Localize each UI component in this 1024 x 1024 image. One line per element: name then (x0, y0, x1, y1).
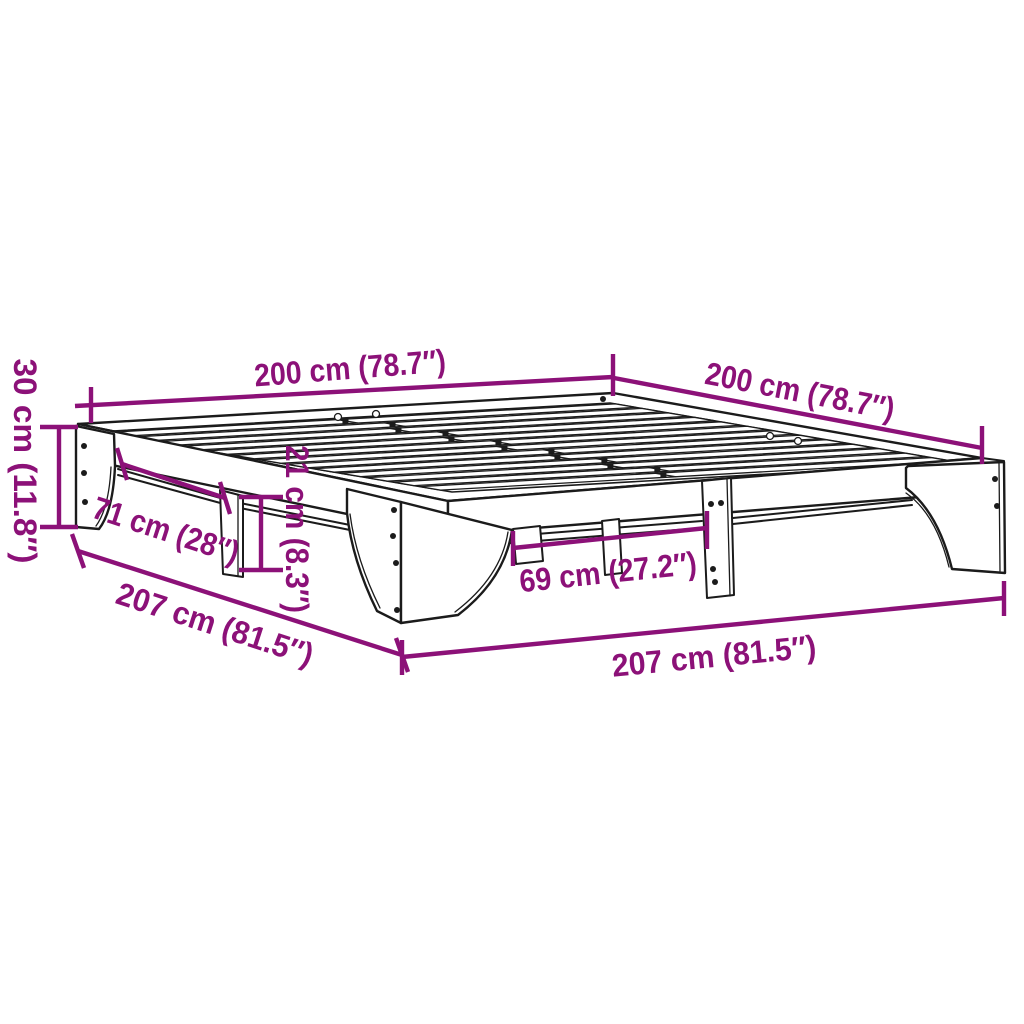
slat-seam-clip (554, 454, 560, 459)
slat-seam-clip (607, 463, 613, 468)
slat-seam-clip (395, 427, 401, 432)
slat-seam-clip (448, 436, 454, 441)
slat-seam-clip (660, 472, 666, 477)
slat-seam-clip (548, 449, 554, 454)
dimension-outer-width-bottom: 207 cm (81.5″) (402, 581, 1004, 684)
dimension-frame-height-label: 30 cm (11.8″) (7, 359, 43, 564)
bed-frame-dimension-diagram: 200 cm (78.7″) 200 cm (78.7″) 30 cm (11.… (0, 0, 1024, 1024)
dimension-leg-spacing-right-label: 69 cm (27.2″) (518, 545, 699, 599)
slat-seam-clip (390, 422, 396, 427)
slat-seam-clip (342, 418, 348, 423)
slat-seam-clip (501, 445, 507, 450)
bed-frame-line-art: 200 cm (78.7″) 200 cm (78.7″) 30 cm (11.… (0, 0, 1024, 1024)
dimension-under-frame-clearance-label: 21 cm (8.3″) (279, 445, 315, 613)
slat-seam-clip (495, 440, 501, 445)
dimension-frame-height: 30 cm (11.8″) (7, 359, 78, 564)
bed-leg-right (906, 462, 1005, 573)
dimension-outer-width-bottom-label: 207 cm (81.5″) (610, 628, 818, 683)
slat-seam-clip (654, 467, 660, 472)
slat-seam-clip (443, 431, 449, 436)
slat-seam-clip (601, 458, 607, 463)
